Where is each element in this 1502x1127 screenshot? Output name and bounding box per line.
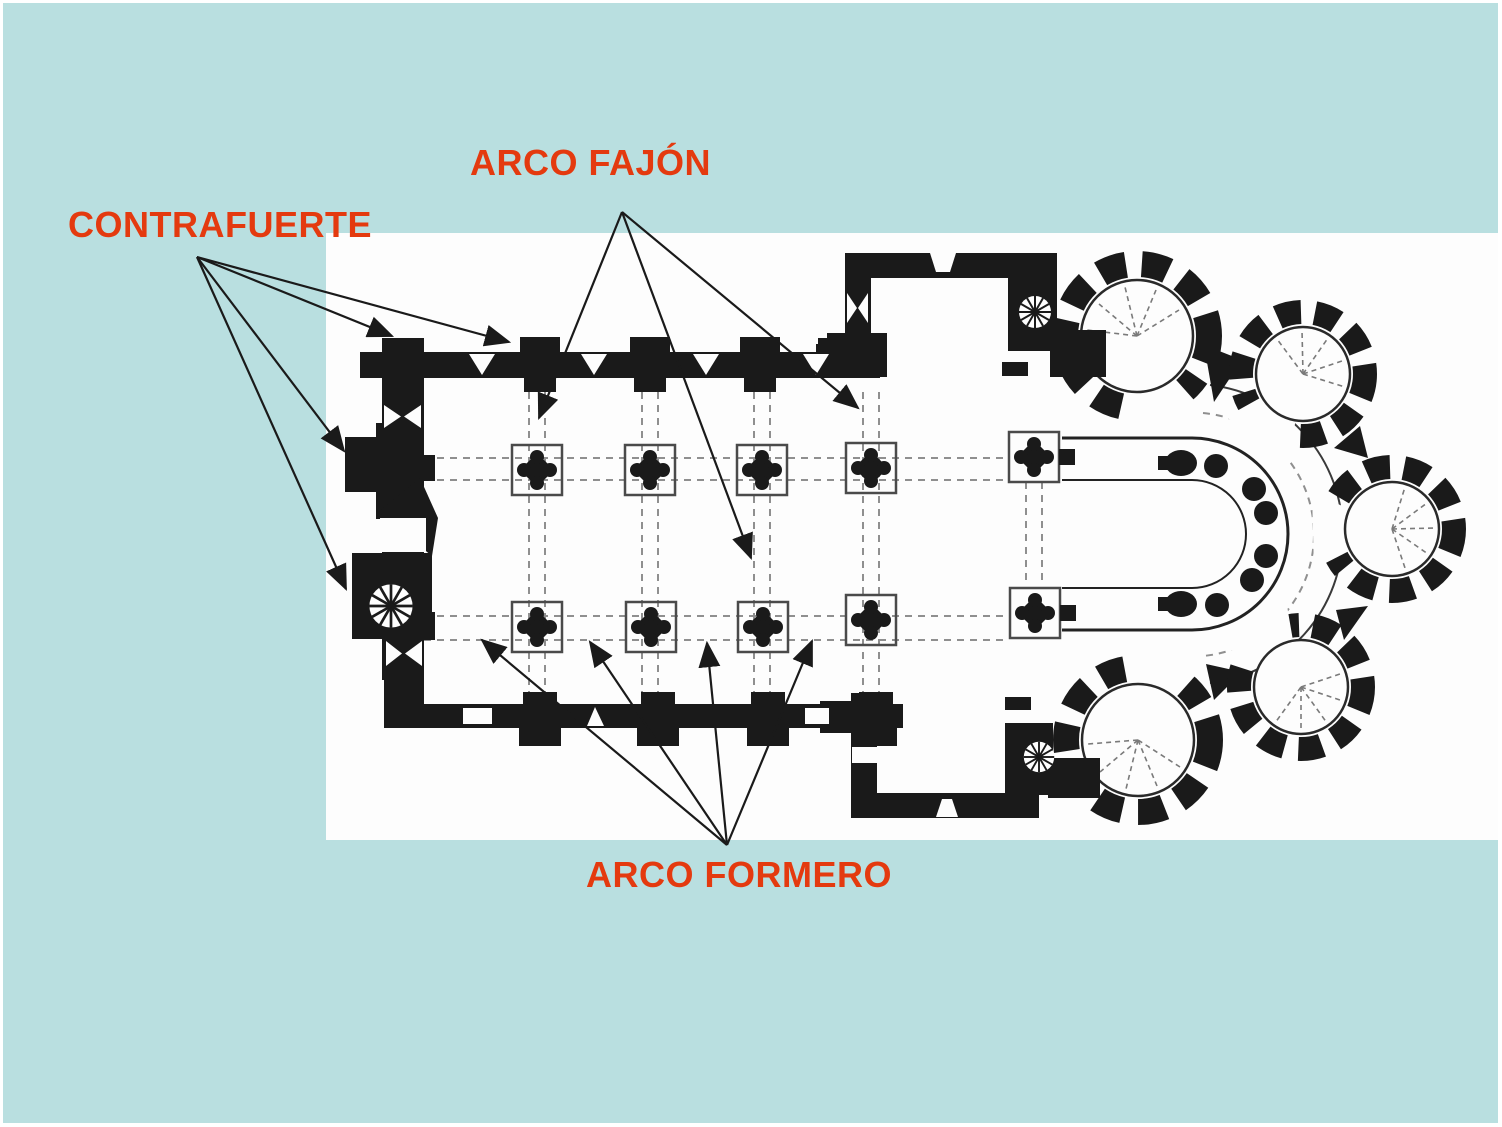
church-floor-plan [0,0,1502,1127]
label-arco-formero: ARCO FORMERO [586,854,892,896]
label-contrafuerte: CONTRAFUERTE [68,204,372,246]
slide: CONTRAFUERTE ARCO FAJÓN ARCO FORMERO [0,0,1502,1127]
label-arco-fajon: ARCO FAJÓN [470,142,711,184]
